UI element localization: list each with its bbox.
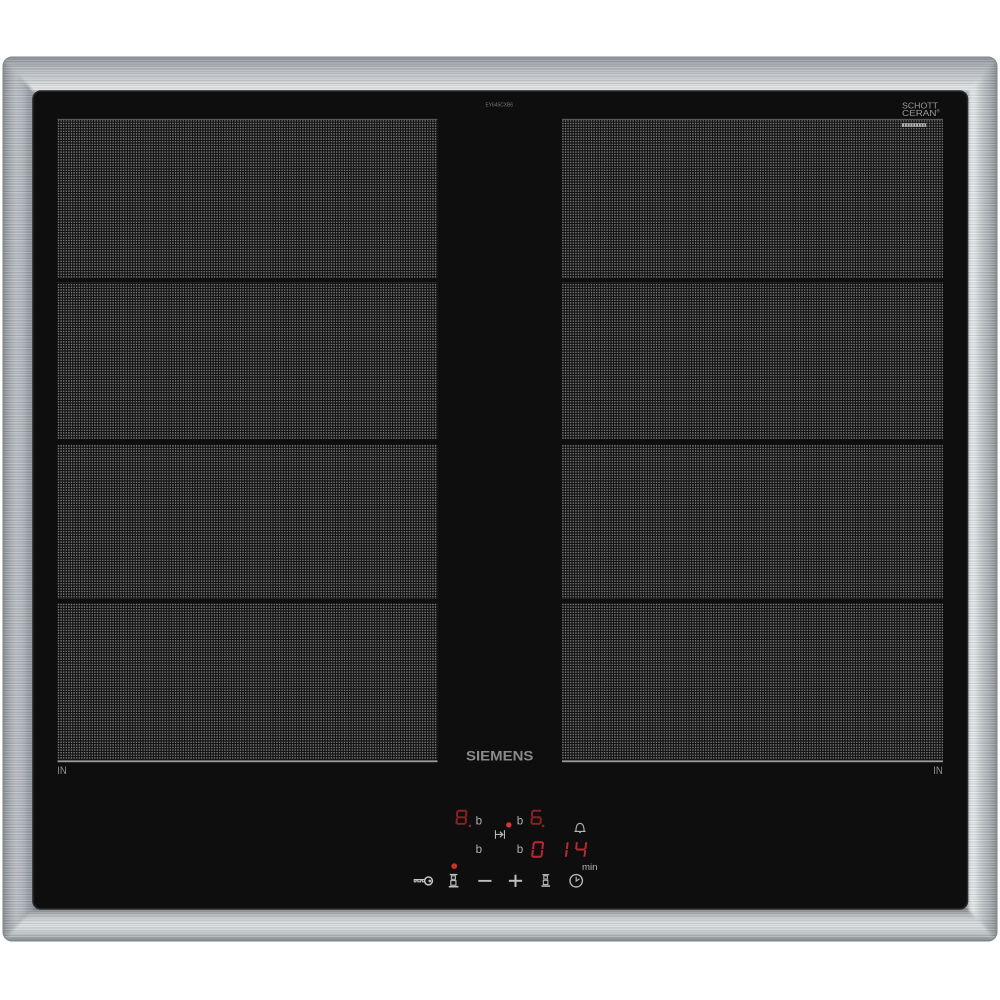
svg-text:IN: IN	[933, 765, 943, 777]
svg-text:EY645CXB6: EY645CXB6	[486, 103, 514, 109]
svg-text:b: b	[476, 814, 482, 827]
svg-text:b: b	[517, 814, 523, 827]
svg-text:IN: IN	[57, 765, 67, 777]
svg-text:b: b	[517, 843, 523, 856]
svg-text:min: min	[582, 862, 598, 873]
svg-text:CERAN: CERAN	[902, 109, 937, 118]
svg-text:b: b	[476, 843, 482, 856]
svg-text:SIEMENS: SIEMENS	[466, 749, 533, 764]
